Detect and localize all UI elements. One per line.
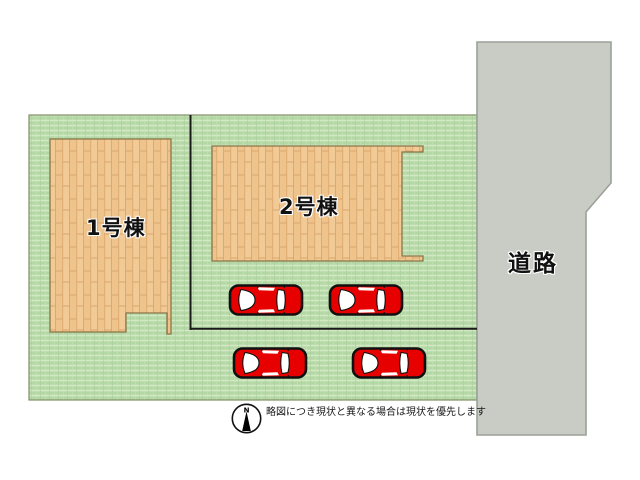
building1-label: 1号棟 <box>86 218 146 239</box>
disclaimer-text: 略図につき現状と異なる場合は現状を優先します <box>266 407 486 419</box>
car-1 <box>230 285 302 316</box>
car-2 <box>330 285 402 316</box>
road-label: 道路 <box>508 253 558 276</box>
car-4 <box>353 348 425 379</box>
north-label: N <box>244 407 250 415</box>
car-3 <box>234 348 306 379</box>
building2-label: 2号棟 <box>279 197 339 218</box>
road-area <box>477 42 611 435</box>
site-plan: N 1号棟 2号棟 道路 略図につき現状と異なる場合は現状を優先します <box>0 0 640 480</box>
north-arrow-icon: N <box>232 404 260 432</box>
